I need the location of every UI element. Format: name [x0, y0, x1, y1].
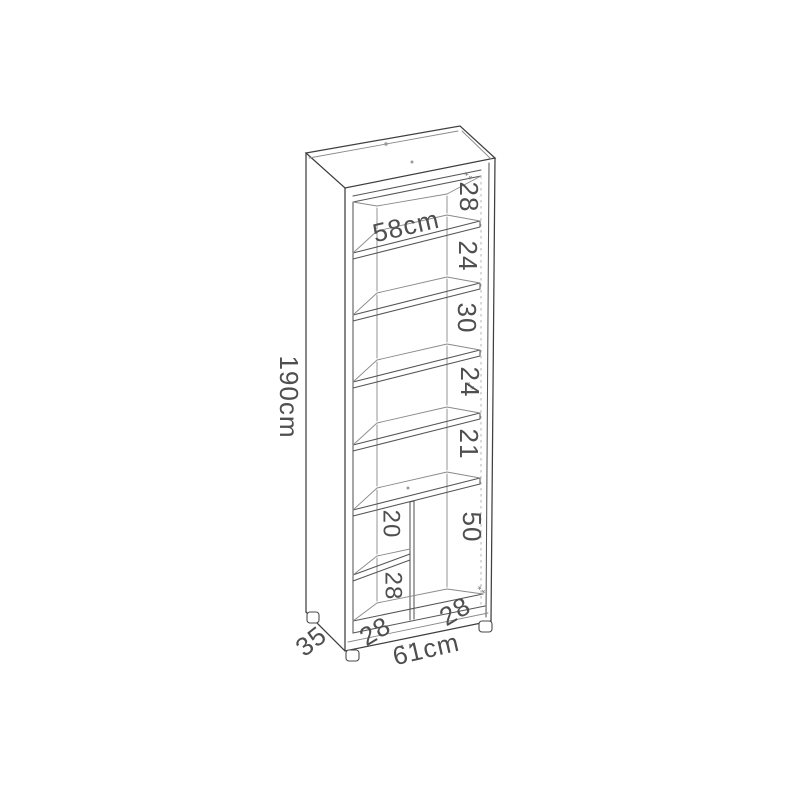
shelf-gap-label-4: 24 — [455, 367, 485, 398]
ceiling-depth-left — [353, 202, 377, 206]
foot-front-left — [346, 650, 359, 661]
cabinet-dimension-diagram: ** ** ** 190cm 58cm 28 24 30 24 21 50 20… — [0, 0, 800, 800]
speck-dot — [407, 487, 410, 490]
ceiling-back-edge — [377, 194, 447, 206]
front-right-outer-edge — [491, 158, 495, 622]
shelf-gap-label-5: 21 — [454, 429, 484, 460]
shelf-5-back — [353, 472, 480, 510]
bottom-right-height-label: 50 — [457, 512, 487, 543]
front-right-inner-edge — [486, 163, 489, 617]
top-face-inner-edge — [309, 131, 458, 158]
speck-dot — [384, 142, 388, 146]
height-dimension-label: 190cm — [274, 355, 304, 438]
shelf-gap-label-1: 28 — [454, 182, 484, 213]
shelf-5-front — [353, 478, 480, 516]
tick-mark: ** — [472, 584, 488, 600]
depth-dimension-label: 35 — [290, 620, 333, 663]
shelf-gap-label-3: 30 — [452, 303, 482, 334]
top-right-edge-inner — [462, 131, 491, 159]
width-dimension-label: 61cm — [390, 627, 463, 671]
vertical-divider — [410, 501, 414, 620]
inner-width-dimension-label: 58cm — [370, 204, 443, 248]
diagram-canvas: ** ** ** 190cm 58cm 28 24 30 24 21 50 20… — [0, 0, 800, 800]
left-upper-compartment-label: 20 — [378, 510, 405, 539]
speck-dot — [411, 161, 414, 164]
foot-front-right — [479, 621, 492, 632]
left-lower-compartment-label: 28 — [380, 572, 407, 601]
shelf-gap-label-2: 24 — [453, 241, 483, 272]
